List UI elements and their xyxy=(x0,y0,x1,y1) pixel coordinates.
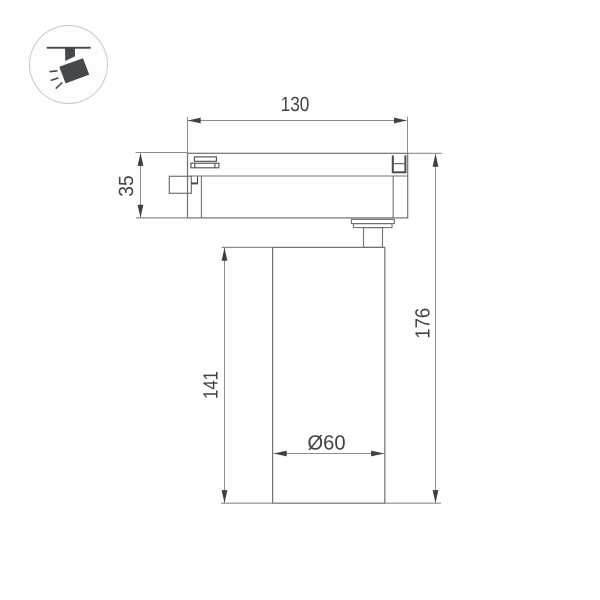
svg-text:35: 35 xyxy=(115,175,138,197)
svg-text:141: 141 xyxy=(199,371,222,399)
svg-text:Ø60: Ø60 xyxy=(308,431,346,454)
svg-text:176: 176 xyxy=(411,308,434,339)
svg-text:130: 130 xyxy=(281,93,310,116)
